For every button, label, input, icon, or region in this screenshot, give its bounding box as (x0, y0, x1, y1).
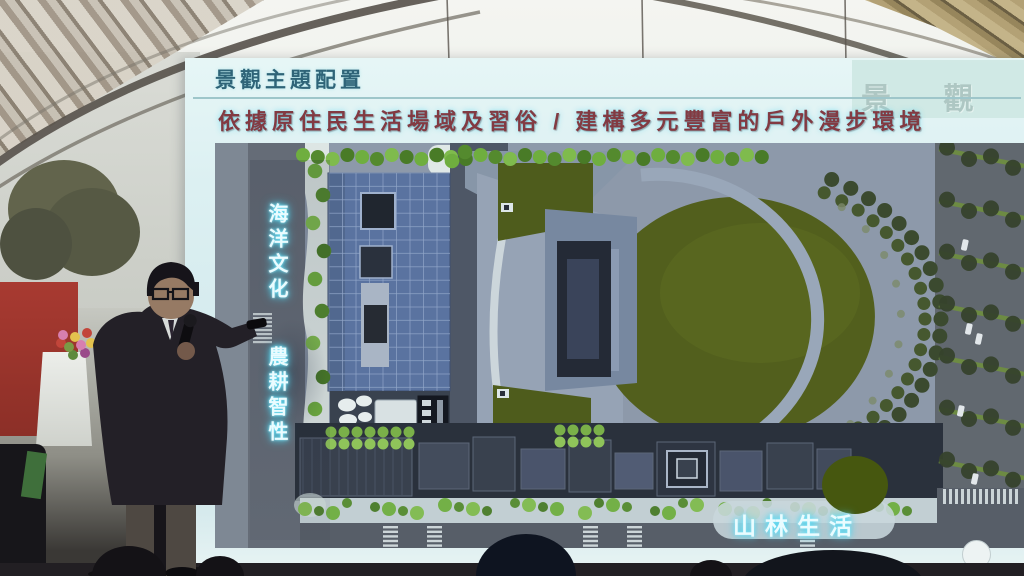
slide-subtitle: 依據原住民生活場域及習俗 / 建構多元豐富的戶外漫步環境 (218, 104, 1018, 136)
zone-label-mountain: 山林生活 (733, 507, 861, 541)
zone-label-farming: 農耕智性 (262, 346, 291, 446)
slide-title: 景觀主題配置 (215, 64, 365, 94)
arm-shadow (242, 295, 342, 455)
flower-bouquet (58, 330, 68, 340)
tree-foliage (0, 208, 72, 280)
road-bottom (300, 523, 1024, 548)
podium (36, 352, 92, 446)
title-divider (193, 97, 1021, 99)
photo-scene: { "slide": { "title": "景觀主題配置", "corner_… (0, 0, 1024, 576)
circular-lawn (822, 456, 888, 514)
zone-label-ocean: 海洋文化 (262, 203, 291, 303)
